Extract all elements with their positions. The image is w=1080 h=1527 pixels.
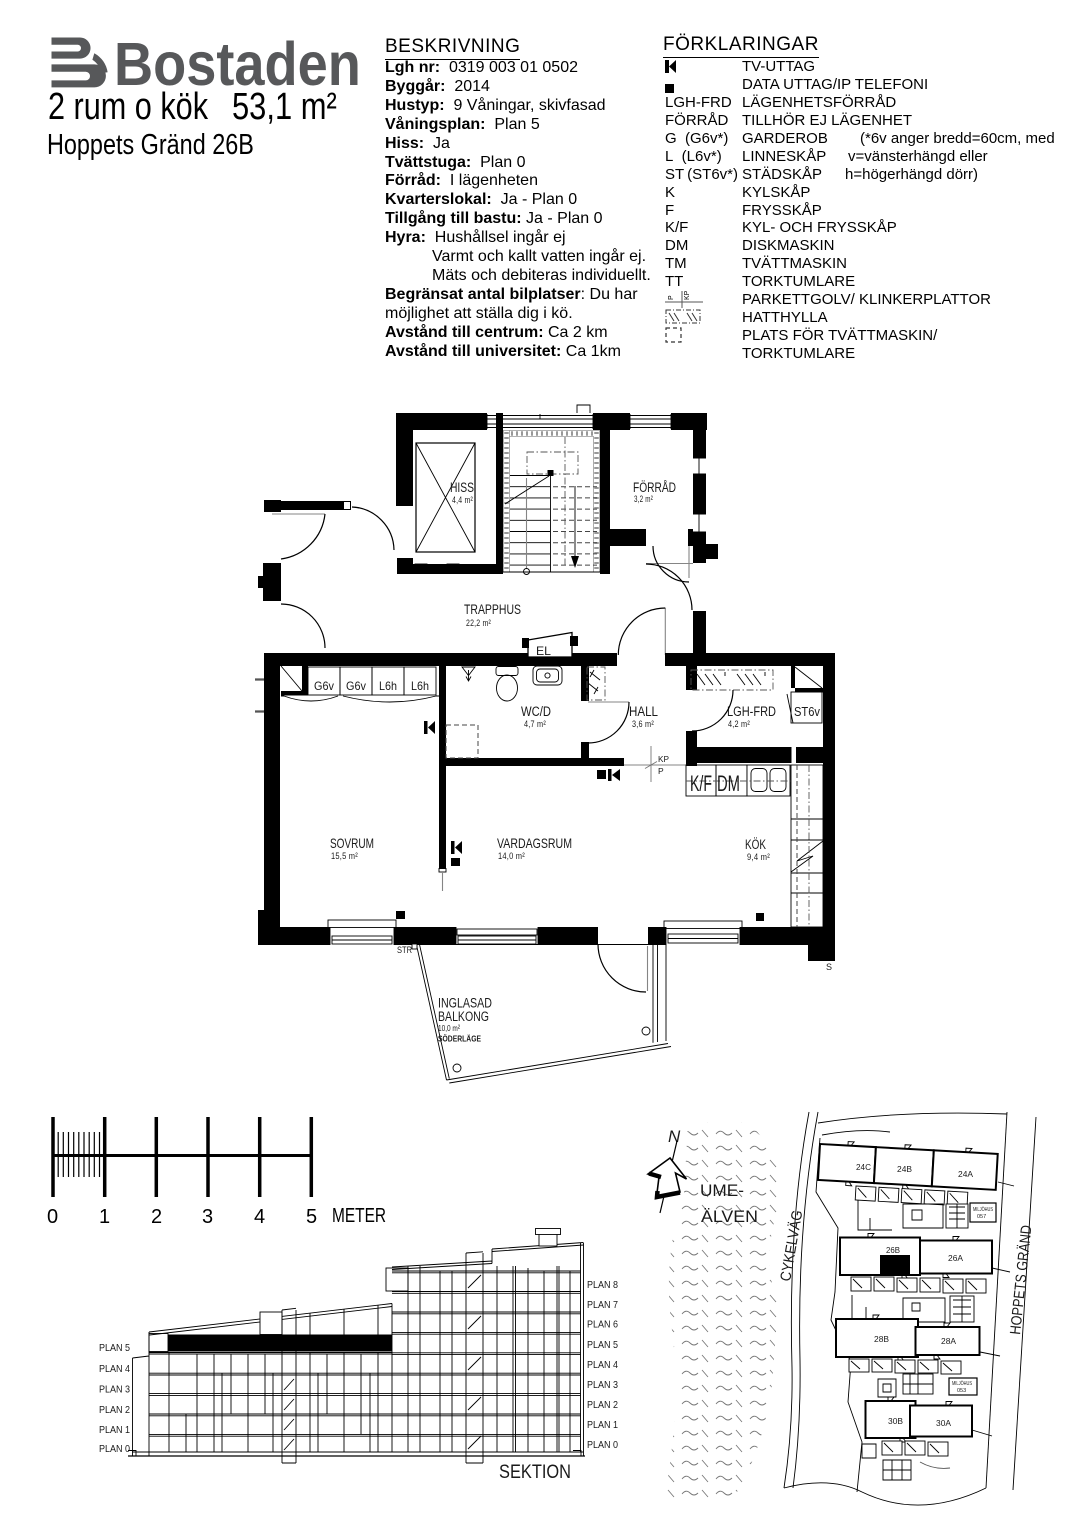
svg-text:S: S [826, 962, 832, 972]
svg-text:PLAN 4: PLAN 4 [587, 1359, 618, 1371]
svg-text:MILJÖHUS: MILJÖHUS [952, 1380, 972, 1387]
svg-text:KÖK: KÖK [745, 837, 766, 852]
svg-text:VARDAGSRUM: VARDAGSRUM [497, 835, 572, 851]
svg-text:HISS: HISS [450, 480, 474, 495]
svg-text:MILJÖHUS: MILJÖHUS [973, 1206, 993, 1213]
svg-text:METER: METER [332, 1205, 386, 1227]
svg-text:BALKONG: BALKONG [438, 1009, 489, 1024]
svg-text:TRAPPHUS: TRAPPHUS [464, 602, 521, 617]
svg-text:EL: EL [536, 646, 552, 658]
svg-text:N: N [668, 1127, 681, 1146]
svg-text:PLAN 0: PLAN 0 [99, 1443, 130, 1455]
svg-text:057: 057 [977, 1214, 986, 1220]
svg-text:28B: 28B [874, 1334, 889, 1344]
svg-text:PLAN 3: PLAN 3 [587, 1379, 618, 1391]
svg-text:WC/D: WC/D [521, 704, 551, 719]
svg-text:PLAN 0: PLAN 0 [587, 1439, 618, 1451]
svg-text:10,0 m²: 10,0 m² [438, 1023, 460, 1033]
svg-text:26B: 26B [886, 1246, 900, 1255]
svg-text:3,2 m²: 3,2 m² [634, 494, 653, 505]
svg-text:2: 2 [151, 1206, 162, 1228]
svg-text:PLAN 3: PLAN 3 [99, 1384, 130, 1396]
svg-text:30B: 30B [888, 1416, 903, 1426]
svg-text:SEKTION: SEKTION [499, 1462, 571, 1483]
svg-text:PLAN 5: PLAN 5 [99, 1342, 130, 1354]
svg-text:PLAN 2: PLAN 2 [99, 1404, 130, 1416]
svg-text:ST6v: ST6v [794, 704, 820, 719]
svg-text:PLAN 8: PLAN 8 [587, 1279, 618, 1291]
svg-text:P: P [658, 766, 664, 776]
svg-text:1: 1 [99, 1206, 110, 1228]
svg-text:KP: KP [658, 754, 669, 764]
svg-text:DM: DM [717, 771, 740, 796]
svg-text:24A: 24A [958, 1169, 973, 1179]
svg-text:HOPPETS GRÄND: HOPPETS GRÄND [1007, 1224, 1035, 1335]
svg-text:G6v: G6v [346, 679, 366, 693]
svg-text:14,0 m²: 14,0 m² [498, 851, 525, 862]
svg-text:G6v: G6v [314, 679, 334, 693]
svg-text:3: 3 [202, 1206, 213, 1228]
svg-text:24C: 24C [856, 1162, 871, 1172]
svg-text:PLAN 4: PLAN 4 [99, 1363, 130, 1375]
svg-text:4,2 m²: 4,2 m² [728, 719, 750, 730]
svg-text:28A: 28A [941, 1336, 956, 1346]
svg-text:FÖRRÅD: FÖRRÅD [633, 480, 676, 495]
svg-text:K/F: K/F [690, 771, 712, 796]
svg-text:PLAN 6: PLAN 6 [587, 1319, 618, 1331]
svg-text:SÖDERLÄGE: SÖDERLÄGE [438, 1034, 481, 1044]
svg-text:STR: STR [397, 945, 412, 955]
svg-text:15,5 m²: 15,5 m² [331, 851, 358, 862]
svg-text:0: 0 [47, 1206, 58, 1228]
svg-text:9,4 m²: 9,4 m² [747, 852, 770, 863]
svg-text:22,2 m²: 22,2 m² [466, 618, 491, 629]
svg-text:4,4 m²: 4,4 m² [452, 495, 473, 506]
svg-text:SOVRUM: SOVRUM [330, 835, 374, 851]
svg-text:ÄLVEN: ÄLVEN [701, 1207, 758, 1226]
svg-text:LGH-FRD: LGH-FRD [727, 704, 776, 719]
svg-text:053: 053 [957, 1388, 966, 1394]
svg-text:4: 4 [254, 1206, 265, 1228]
svg-text:L6h: L6h [411, 679, 429, 693]
svg-text:HALL: HALL [629, 704, 658, 719]
svg-text:30A: 30A [936, 1418, 951, 1428]
svg-text:26A: 26A [948, 1253, 963, 1263]
svg-text:PLAN 5: PLAN 5 [587, 1339, 618, 1351]
svg-text:PLAN 2: PLAN 2 [587, 1399, 618, 1411]
svg-text:4,7 m²: 4,7 m² [524, 719, 546, 730]
svg-text:PLAN 1: PLAN 1 [99, 1424, 130, 1436]
svg-text:5: 5 [306, 1206, 317, 1228]
svg-text:24B: 24B [897, 1164, 912, 1174]
svg-text:PLAN 1: PLAN 1 [587, 1419, 618, 1431]
svg-text:3,6 m²: 3,6 m² [632, 719, 654, 730]
svg-text:L6h: L6h [379, 679, 397, 693]
svg-text:UME-: UME- [700, 1181, 744, 1200]
svg-text:PLAN 7: PLAN 7 [587, 1299, 618, 1311]
